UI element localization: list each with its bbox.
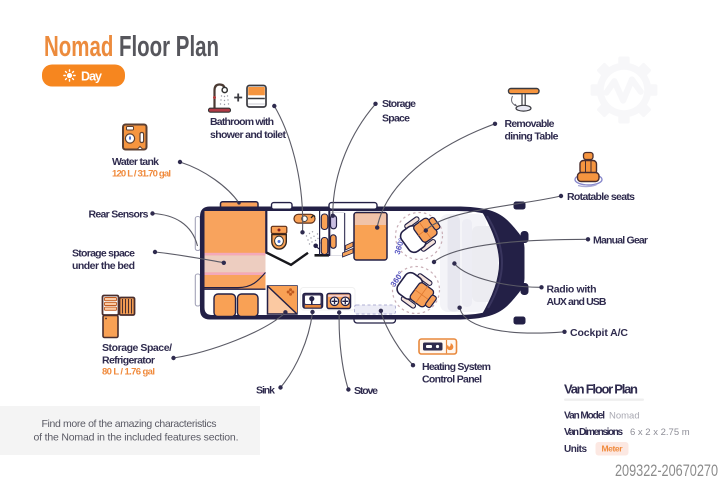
svg-text:Van Floor Plan: Van Floor Plan (564, 382, 638, 397)
svg-text:AUX and USB: AUX and USB (547, 296, 607, 308)
svg-text:Storage Space/: Storage Space/ (102, 342, 172, 354)
svg-text:Meter: Meter (602, 444, 624, 454)
svg-text:Day: Day (81, 70, 102, 84)
svg-text:Heating System: Heating System (422, 361, 491, 373)
svg-text:Bathroom with: Bathroom with (210, 116, 274, 128)
svg-text:120 L / 31.70 gal: 120 L / 31.70 gal (112, 169, 171, 180)
svg-text:Rear Sensors: Rear Sensors (89, 209, 149, 221)
svg-text:Rotatable seats: Rotatable seats (567, 191, 635, 203)
svg-text:shower and toilet: shower and toilet (210, 129, 287, 141)
svg-text:80 L / 1.76 gal: 80 L / 1.76 gal (102, 367, 155, 378)
svg-text:209322-20670270: 209322-20670270 (615, 461, 718, 480)
svg-text:Control Panel: Control Panel (422, 374, 482, 386)
svg-text:Space: Space (382, 113, 410, 125)
svg-text:of the Nomad in the included f: of the Nomad in the included features se… (34, 432, 239, 444)
svg-text:Van Dimensions: Van Dimensions (564, 427, 623, 438)
svg-text:Storage: Storage (382, 98, 416, 110)
svg-text:Find more of the amazing chara: Find more of the amazing characteristics (42, 418, 217, 430)
svg-text:Units: Units (564, 444, 587, 455)
svg-text:under the bed: under the bed (72, 260, 135, 272)
svg-text:Storage space: Storage space (72, 248, 135, 260)
svg-text:Nomad Floor Plan: Nomad Floor Plan (44, 31, 219, 63)
svg-text:Nomad: Nomad (609, 411, 640, 422)
svg-text:Stove: Stove (354, 385, 378, 397)
svg-text:Van Model: Van Model (564, 411, 605, 422)
svg-text:6 x 2 x 2.75 m: 6 x 2 x 2.75 m (630, 427, 690, 438)
svg-text:Manual Gear: Manual Gear (593, 235, 648, 247)
svg-text:dining Table: dining Table (505, 131, 559, 143)
svg-text:Removable: Removable (505, 118, 555, 130)
svg-text:Sink: Sink (256, 385, 275, 397)
svg-text:Cockpit A/C: Cockpit A/C (570, 327, 628, 339)
svg-text:Radio with: Radio with (547, 284, 597, 296)
svg-text:Refrigerator: Refrigerator (102, 355, 155, 367)
svg-text:Water tank: Water tank (112, 156, 159, 168)
